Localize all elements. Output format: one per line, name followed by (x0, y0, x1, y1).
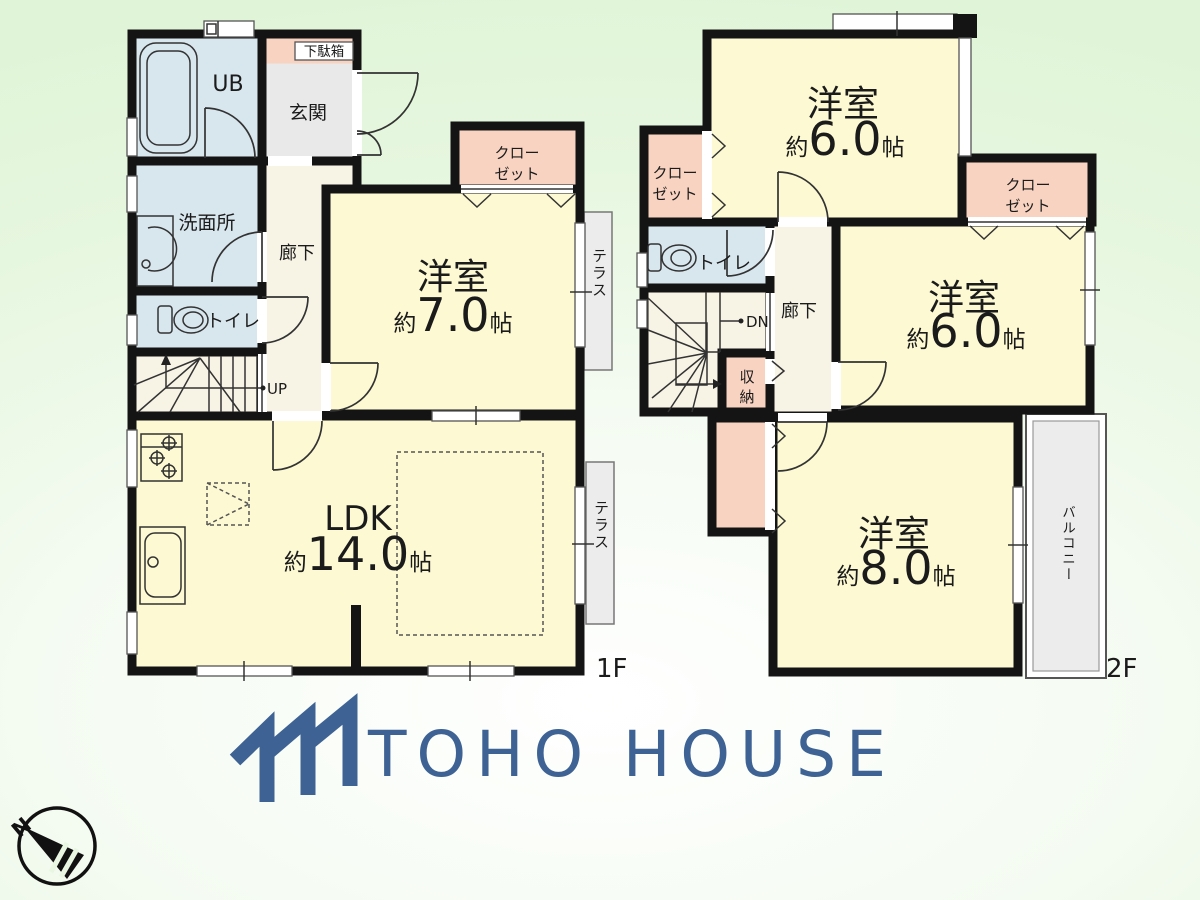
label-stairs-dn: DN (746, 313, 769, 331)
label-entrance: 玄関 (289, 102, 327, 124)
label-shoe-cabinet: 下駄箱 (304, 44, 345, 60)
floor2-plan: 洋室 約6.0帖 クロー ゼット クロー ゼット トイレ 廊下 DN 収 納 洋… (637, 11, 1138, 684)
closet-2f-bottomleft (712, 418, 770, 532)
label-ub: UB (212, 72, 243, 97)
ub-counter-icon (204, 21, 254, 37)
label-hallway-1f: 廊下 (279, 243, 315, 264)
compass-icon: N (7, 808, 95, 884)
label-washroom: 洗面所 (178, 212, 235, 234)
label-floor2: 2F (1106, 654, 1138, 684)
floorplan-canvas: UB 下駄箱 玄関 洗面所 トイレ 廊下 クロー ゼット 洋室 約7.0帖 LD… (0, 0, 1200, 900)
label-closet-tr-line1: クロー (1005, 176, 1050, 194)
label-terrace-upper: テラス (590, 248, 608, 299)
label-storage-line2: 納 (739, 388, 754, 406)
floor1-plan: UB 下駄箱 玄関 洗面所 トイレ 廊下 クロー ゼット 洋室 約7.0帖 LD… (127, 21, 628, 684)
label-closet-tl-line2: ゼット (652, 185, 697, 203)
label-closet-1f-line1: クロー (494, 144, 539, 162)
label-toilet-2f: トイレ (697, 253, 751, 274)
label-stairs-up: UP (267, 380, 287, 398)
label-balcony: バルコニー (1059, 505, 1075, 583)
brand-name: TOHO HOUSE (367, 718, 896, 791)
label-floor1: 1F (596, 654, 628, 684)
label-storage-line1: 収 (739, 368, 754, 386)
label-terrace-lower: テラス (592, 500, 610, 551)
label-closet-tr-line2: ゼット (1005, 197, 1050, 215)
ldk-wall-stub (351, 605, 361, 671)
label-toilet-1f: トイレ (206, 311, 260, 332)
toho-house-logo-icon (235, 709, 350, 802)
label-closet-tl-line1: クロー (652, 164, 697, 182)
brand-logo: TOHO HOUSE (235, 709, 896, 802)
label-hallway-2f: 廊下 (781, 301, 817, 322)
label-closet-1f-line2: ゼット (494, 165, 539, 183)
